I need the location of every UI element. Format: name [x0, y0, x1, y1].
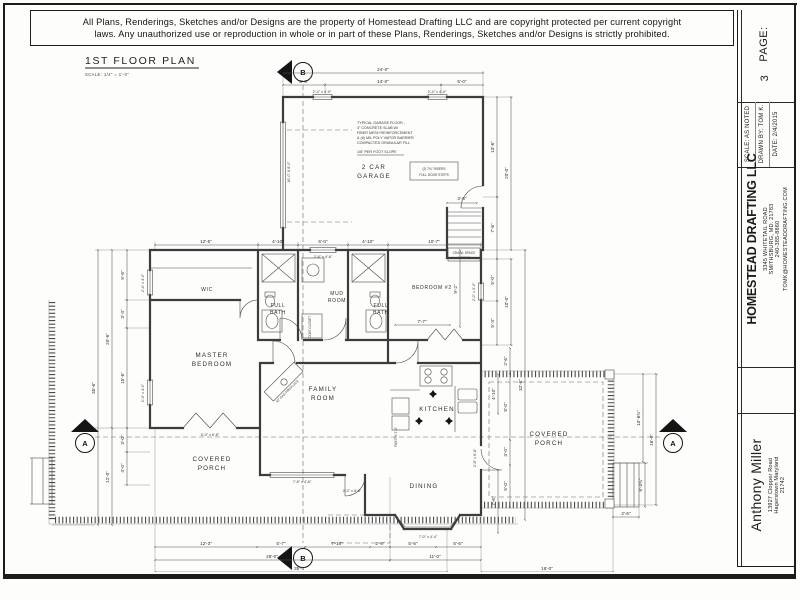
- svg-text:3'-0": 3'-0": [503, 447, 508, 457]
- divider: [738, 102, 794, 103]
- svg-text:6'-0": 6'-0": [318, 239, 328, 244]
- page-border-bottom: [3, 574, 796, 579]
- svg-text:4'-0": 4'-0": [120, 463, 125, 473]
- svg-text:PORCH: PORCH: [198, 465, 226, 472]
- svg-text:15'-6": 15'-6": [120, 372, 125, 384]
- page-number: 3: [759, 75, 771, 82]
- svg-text:2'-0" x 6'-8": 2'-0" x 6'-8": [343, 489, 362, 493]
- company-phone: 240-385-8860: [775, 221, 781, 258]
- svg-text:24'-0": 24'-0": [377, 67, 389, 72]
- svg-text:2'-8" x 4'-6": 2'-8" x 4'-6": [314, 255, 333, 259]
- copyright-line-2: laws. Any unauthorized use or reproducti…: [94, 28, 669, 41]
- divider: [769, 102, 770, 167]
- note-crawl-access: CRAWL SPACE: [453, 251, 476, 255]
- drawn-by: DRAWN BY: TOM K.: [759, 105, 765, 164]
- svg-text:6'-3¾": 6'-3¾": [638, 478, 643, 491]
- svg-text:6'-0" x 6'-8": 6'-0" x 6'-8": [201, 433, 220, 437]
- note-slope: 1/8" PER FOOT SLOPE: [357, 150, 397, 154]
- svg-text:7'-6": 7'-6": [491, 496, 496, 506]
- room-label-porch-left: COVERED: [193, 456, 232, 463]
- copyright-box: All Plans, Renderings, Sketches and/or D…: [30, 10, 734, 46]
- svg-text:10'-6¾": 10'-6¾": [636, 410, 641, 426]
- svg-text:32'-6": 32'-6": [518, 379, 523, 391]
- room-label-dining: DINING: [410, 483, 439, 490]
- svg-text:2'-4" x 4'-0": 2'-4" x 4'-0": [313, 90, 332, 94]
- svg-text:12'-3": 12'-3": [200, 541, 212, 546]
- svg-text:ROOM: ROOM: [328, 298, 346, 304]
- svg-text:& (6) MIL POLY VAPOR BARRIER: & (6) MIL POLY VAPOR BARRIER: [357, 136, 414, 140]
- svg-text:FIBER MESH REINFORCEMENT: FIBER MESH REINFORCEMENT: [357, 131, 413, 135]
- room-label-garage: 2 CAR: [362, 164, 386, 171]
- svg-text:7'-6": 7'-6": [490, 223, 495, 233]
- title-block: PAGE: 3 SCALE: AS NOTED DRAWN BY: TOM K.…: [737, 10, 794, 567]
- svg-text:TYPICAL GARAGE FLOOR -: TYPICAL GARAGE FLOOR -: [357, 121, 406, 125]
- drawing-scale: SCALE: 1/4" = 1'-0": [85, 72, 129, 77]
- section-marker-a-left: A: [82, 439, 88, 448]
- porch-deck-edges: [52, 302, 611, 521]
- section-marker-a-right: A: [670, 439, 676, 448]
- floor-plan: B B A A 1ST FLOOR PLAN SCALE: 1/4" =: [30, 50, 737, 572]
- drawing-sheet: { "copyright": { "line1": "All Plans, Re…: [0, 0, 800, 600]
- svg-text:2'-6": 2'-6": [503, 356, 508, 366]
- room-label-wic: WIC: [201, 287, 213, 293]
- svg-text:2'-0" x 3'-0": 2'-0" x 3'-0": [472, 282, 476, 301]
- svg-text:BATH: BATH: [373, 310, 389, 316]
- svg-text:COMPACTED GRANULAR FILL: COMPACTED GRANULAR FILL: [357, 141, 410, 145]
- svg-text:20'-6": 20'-6": [105, 333, 110, 345]
- svg-text:14'-0": 14'-0": [377, 79, 389, 84]
- date: DATE: 2/4/2015: [773, 111, 779, 156]
- room-labels: 2 CAR GARAGE WIC FULL BATH FULL BATH MUD…: [192, 164, 569, 490]
- svg-text:13'-6": 13'-6": [490, 141, 495, 153]
- svg-text:16'-0": 16'-0": [649, 434, 654, 446]
- client-name: Anthony Miller: [748, 439, 764, 532]
- room-label-mud-room: MUD: [330, 291, 344, 297]
- svg-text:FULL DOOR STEPS: FULL DOOR STEPS: [419, 173, 448, 177]
- svg-text:5'-3": 5'-3": [490, 318, 495, 328]
- room-label-bath-2: FULL: [373, 303, 388, 309]
- client-zip: 21742: [780, 477, 786, 493]
- svg-text:5'-0": 5'-0": [299, 79, 309, 84]
- svg-text:5'-6": 5'-6": [408, 541, 418, 546]
- page-label: PAGE:: [758, 26, 770, 61]
- svg-text:BEDROOM: BEDROOM: [192, 361, 232, 368]
- svg-text:4'-10": 4'-10": [362, 239, 374, 244]
- svg-text:12'-5": 12'-5": [200, 239, 212, 244]
- company-name: HOMESTEAD DRAFTING LLC: [745, 153, 759, 324]
- svg-text:20'-0": 20'-0": [504, 167, 509, 179]
- svg-text:5'-0": 5'-0": [457, 79, 467, 84]
- company-email: TOMK@HOMESTEADDRAFTING.COM: [783, 187, 789, 291]
- svg-text:7'-10": 7'-10": [331, 541, 343, 546]
- svg-text:3'-6": 3'-6": [457, 196, 467, 201]
- divider: [738, 413, 794, 414]
- note-risers: (2) 7¾" RISERS: [422, 167, 445, 171]
- svg-text:3'-4": 3'-4": [120, 309, 125, 319]
- svg-text:35'-6": 35'-6": [91, 382, 96, 394]
- svg-text:8'-0": 8'-0": [503, 402, 508, 412]
- svg-text:4'-10": 4'-10": [272, 239, 284, 244]
- room-label-family: FAMILY: [309, 386, 338, 393]
- section-marker-b-top: B: [300, 68, 306, 77]
- svg-text:2'-4" x 4'-0": 2'-4" x 4'-0": [428, 90, 447, 94]
- svg-text:4'-10": 4'-10": [491, 388, 496, 400]
- svg-text:GARAGE: GARAGE: [357, 173, 391, 180]
- svg-text:12'-0": 12'-0": [105, 471, 110, 483]
- title-block-inner-rule: [741, 10, 742, 566]
- copyright-line-1: All Plans, Renderings, Sketches and/or D…: [83, 16, 681, 29]
- svg-text:5'-6": 5'-6": [453, 541, 463, 546]
- room-label-pantry: PANTRY 2'-0": [394, 427, 398, 447]
- room-label-coat-closet: COAT CLOSET: [308, 316, 312, 338]
- page-border-right: [794, 3, 796, 579]
- svg-text:2'-4" x 4'-0": 2'-4" x 4'-0": [141, 383, 145, 402]
- svg-text:2'-6": 2'-6": [621, 511, 631, 516]
- room-label-master: MASTER: [196, 352, 229, 359]
- svg-text:7'-8" x 4'-6": 7'-8" x 4'-6": [293, 480, 312, 484]
- svg-text:3'-0": 3'-0": [120, 435, 125, 445]
- svg-text:16'-0": 16'-0": [541, 566, 553, 571]
- svg-text:7'-0" x 4'-4": 7'-0" x 4'-4": [419, 535, 438, 539]
- page-border-top: [3, 3, 797, 5]
- svg-text:PORCH: PORCH: [535, 440, 563, 447]
- svg-text:10'-7": 10'-7": [428, 239, 440, 244]
- room-label-bedroom-2: BEDROOM #2: [412, 285, 452, 291]
- room-label-bath-1: FULL: [270, 303, 285, 309]
- svg-text:28'-0": 28'-0": [266, 554, 278, 559]
- svg-text:7'-7": 7'-7": [417, 319, 427, 324]
- svg-text:11'-0": 11'-0": [429, 554, 441, 559]
- page-border-left: [3, 3, 5, 579]
- svg-text:ROOM: ROOM: [311, 395, 335, 402]
- room-label-kitchen: KITCHEN: [419, 406, 455, 413]
- svg-text:4" CONCRETE SLAB W/: 4" CONCRETE SLAB W/: [357, 126, 399, 130]
- svg-text:16'-0" X 8'-0": 16'-0" X 8'-0": [287, 161, 291, 183]
- svg-text:5'-7": 5'-7": [276, 541, 286, 546]
- svg-text:2'-4" x 4'-0": 2'-4" x 4'-0": [141, 273, 145, 292]
- svg-text:2'-4": 2'-4": [375, 541, 385, 546]
- svg-text:2'-8" x 6'-8": 2'-8" x 6'-8": [473, 448, 477, 467]
- svg-text:9'-2": 9'-2": [453, 284, 458, 294]
- svg-text:BATH: BATH: [270, 310, 286, 316]
- svg-text:10'-0": 10'-0": [504, 296, 509, 308]
- doors: [183, 186, 502, 496]
- fixtures: [30, 162, 639, 508]
- drawing-title: 1ST FLOOR PLAN: [85, 55, 196, 67]
- svg-text:ACCESS: ACCESS: [457, 256, 470, 260]
- svg-text:35'-0": 35'-0": [294, 566, 306, 571]
- svg-text:5'-0": 5'-0": [490, 275, 495, 285]
- divider: [738, 367, 794, 368]
- svg-text:5'-0": 5'-0": [503, 481, 508, 491]
- section-marker-b-bottom: B: [300, 554, 306, 563]
- room-label-porch-right: COVERED: [530, 431, 569, 438]
- svg-text:5'-6": 5'-6": [120, 270, 125, 280]
